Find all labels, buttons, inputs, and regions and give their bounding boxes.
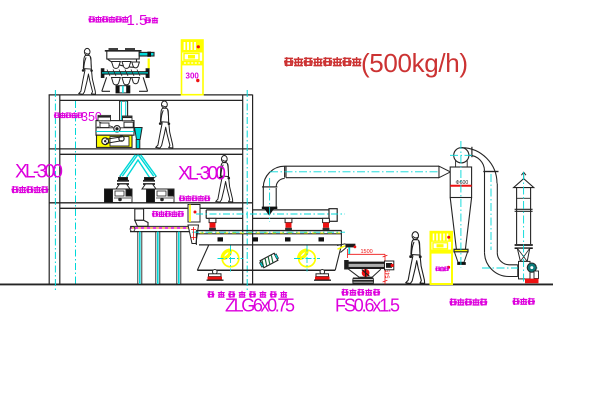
svg-text:1500: 1500 [361,249,373,255]
svg-text:XL-300: XL-300 [15,162,63,183]
svg-text:XL-300: XL-300 [178,164,226,185]
svg-text:FS0.6x1.5: FS0.6x1.5 [335,296,400,316]
svg-text:545: 545 [386,269,392,278]
svg-text:Φ600: Φ600 [456,180,469,186]
svg-text:ZLG6x0.75: ZLG6x0.75 [225,296,295,316]
svg-text:1.5: 1.5 [127,12,148,29]
svg-text:(500kg/h): (500kg/h) [361,48,468,78]
